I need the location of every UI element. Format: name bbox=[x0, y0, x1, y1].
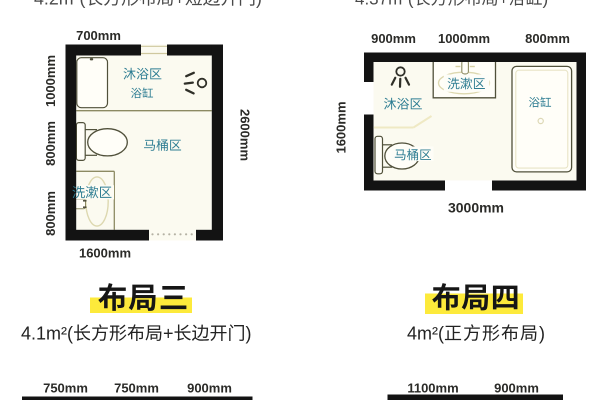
svg-text:900mm: 900mm bbox=[187, 381, 232, 396]
svg-text:750mm: 750mm bbox=[114, 381, 159, 396]
svg-text:750mm: 750mm bbox=[43, 381, 88, 396]
svg-text:+: + bbox=[163, 324, 174, 344]
svg-text:3000mm: 3000mm bbox=[448, 200, 504, 216]
svg-text:1000mm: 1000mm bbox=[43, 55, 58, 107]
svg-text:900mm: 900mm bbox=[494, 381, 539, 396]
svg-text:4.37m²(: 4.37m²( bbox=[355, 0, 414, 8]
svg-text:+: + bbox=[174, 0, 184, 8]
svg-text:): ) bbox=[246, 324, 252, 344]
svg-text:800mm: 800mm bbox=[525, 31, 570, 46]
svg-text:800mm: 800mm bbox=[43, 191, 58, 236]
svg-text:700mm: 700mm bbox=[76, 28, 121, 43]
svg-text:4.2m²(: 4.2m²( bbox=[34, 0, 85, 8]
svg-text:1100mm: 1100mm bbox=[407, 381, 458, 396]
svg-text:900mm: 900mm bbox=[371, 31, 416, 46]
svg-text:2600mm: 2600mm bbox=[238, 109, 253, 161]
svg-text:4.1m²(: 4.1m²( bbox=[21, 324, 73, 344]
svg-text:1600mm: 1600mm bbox=[79, 246, 131, 261]
svg-text:+: + bbox=[499, 0, 509, 8]
svg-text:1600mm: 1600mm bbox=[334, 101, 349, 153]
svg-text:): ) bbox=[543, 0, 549, 8]
svg-text:4m²(: 4m²( bbox=[407, 324, 444, 344]
svg-text:800mm: 800mm bbox=[43, 121, 58, 166]
svg-text:): ) bbox=[256, 0, 262, 8]
svg-text:): ) bbox=[539, 324, 545, 344]
svg-text:1000mm: 1000mm bbox=[438, 31, 490, 46]
